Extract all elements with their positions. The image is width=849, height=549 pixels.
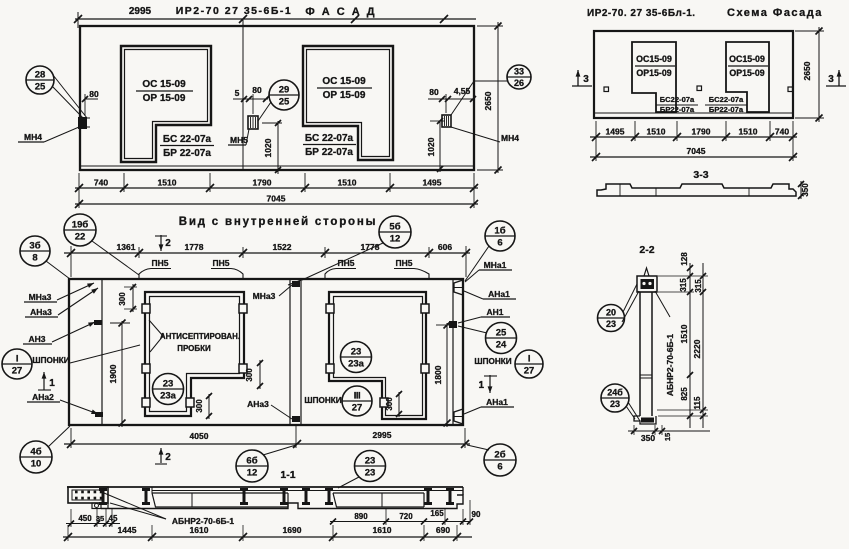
svg-text:ОР15-09: ОР15-09 [729,68,764,78]
svg-text:33: 33 [514,67,524,77]
svg-text:ОС15-09: ОС15-09 [636,54,672,64]
svg-text:6б: 6б [246,456,257,467]
svg-text:4050: 4050 [190,431,209,441]
svg-text:23: 23 [610,399,620,409]
svg-text:МНа1: МНа1 [484,260,507,270]
svg-text:АНа2: АНа2 [32,392,54,402]
svg-text:БР 22-07а: БР 22-07а [163,148,211,159]
svg-text:8: 8 [32,253,37,264]
svg-text:БР22-07а: БР22-07а [709,105,744,114]
svg-text:ПН5: ПН5 [152,258,169,268]
svg-text:6: 6 [497,462,502,473]
svg-text:БР 22-07а: БР 22-07а [305,147,353,158]
svg-text:БС 22-07а: БС 22-07а [163,134,212,145]
svg-text:2220: 2220 [692,339,702,358]
svg-text:128: 128 [680,252,689,266]
svg-text:3б: 3б [29,241,40,252]
svg-text:ШПОНКИ: ШПОНКИ [32,356,69,365]
svg-text:27: 27 [352,403,363,414]
svg-text:ПН5: ПН5 [396,258,413,268]
svg-text:1495: 1495 [606,127,625,137]
svg-text:23: 23 [365,456,376,467]
svg-text:2995: 2995 [373,430,392,440]
svg-text:80: 80 [89,89,99,99]
svg-text:450: 450 [78,514,92,523]
svg-text:3: 3 [828,74,834,85]
svg-text:29: 29 [279,85,290,96]
svg-text:5б: 5б [389,222,400,233]
svg-text:I: I [16,354,18,365]
svg-text:115: 115 [693,396,702,409]
svg-text:315: 315 [679,278,688,292]
svg-text:4,55: 4,55 [454,86,471,96]
svg-text:25: 25 [496,328,507,339]
svg-text:12: 12 [390,234,401,245]
svg-text:ОР 15-09: ОР 15-09 [323,90,366,101]
svg-text:1522: 1522 [273,242,292,252]
svg-text:20: 20 [606,308,616,318]
svg-text:Вид с внутренней стороны: Вид с внутренней стороны [179,216,378,228]
svg-text:23: 23 [365,468,376,479]
svg-text:АНа1: АНа1 [486,397,508,407]
svg-text:1790: 1790 [253,178,272,188]
svg-text:28: 28 [35,70,46,81]
svg-text:1: 1 [49,378,55,389]
svg-text:1361: 1361 [117,242,136,252]
svg-text:БС 22-07а: БС 22-07а [305,133,354,144]
svg-text:740: 740 [94,178,108,188]
svg-text:ИР2-70. 27 35-6Бл-1.: ИР2-70. 27 35-6Бл-1. [587,8,696,19]
svg-text:27: 27 [12,366,23,377]
svg-text:ПРОБКИ: ПРОБКИ [177,344,211,353]
svg-text:2б: 2б [494,450,505,461]
svg-text:7045: 7045 [267,194,286,204]
svg-text:23а: 23а [348,359,365,370]
svg-text:ШПОНКИ: ШПОНКИ [474,357,511,366]
svg-text:80: 80 [429,87,439,97]
svg-text:2-2: 2-2 [639,244,654,256]
svg-text:МНа3: МНа3 [253,291,276,301]
svg-text:Ф А С А Д: Ф А С А Д [305,6,376,18]
svg-text:1778: 1778 [185,242,204,252]
svg-text:АБНР2-70-6Б-1: АБНР2-70-6Б-1 [665,334,675,397]
svg-text:ОС15-09: ОС15-09 [729,54,765,64]
svg-text:1510: 1510 [338,178,357,188]
svg-text:1510: 1510 [739,127,758,137]
svg-text:1445: 1445 [118,525,137,535]
svg-text:300: 300 [118,292,127,306]
svg-text:Схема Фасада: Схема Фасада [727,7,823,19]
svg-text:3: 3 [583,74,589,85]
svg-text:5: 5 [235,88,240,98]
svg-text:24б: 24б [607,388,623,398]
svg-text:25: 25 [279,97,290,108]
svg-text:III: III [354,391,360,402]
svg-text:ОР15-09: ОР15-09 [636,68,671,78]
svg-text:6: 6 [497,238,502,249]
svg-text:2: 2 [165,238,171,249]
svg-text:720: 720 [399,512,413,521]
svg-text:2: 2 [165,452,171,463]
svg-text:7045: 7045 [687,146,706,156]
svg-text:АНа3: АНа3 [247,399,269,409]
svg-text:19б: 19б [72,220,89,231]
svg-text:890: 890 [354,512,368,521]
svg-text:10: 10 [31,459,42,470]
svg-text:1-1: 1-1 [280,469,295,481]
svg-text:4б: 4б [30,447,41,458]
svg-text:90: 90 [472,510,481,519]
svg-text:1495: 1495 [423,178,442,188]
svg-text:1778: 1778 [361,242,380,252]
svg-text:23: 23 [606,319,616,329]
svg-text:24: 24 [496,340,507,351]
svg-text:1800: 1800 [433,365,443,384]
svg-text:15: 15 [663,433,672,441]
svg-text:МН4: МН4 [501,133,519,143]
svg-text:1: 1 [478,380,484,391]
svg-text:ПН5: ПН5 [213,258,230,268]
svg-text:27: 27 [524,366,535,377]
svg-text:1610: 1610 [373,525,392,535]
svg-text:315: 315 [694,279,703,293]
svg-text:1510: 1510 [679,324,689,343]
svg-text:1790: 1790 [692,127,711,137]
svg-text:АНа3: АНа3 [30,307,52,317]
svg-text:300: 300 [245,368,254,382]
svg-text:АНТИСЕПТИРОВАН.: АНТИСЕПТИРОВАН. [160,332,240,341]
svg-text:2650: 2650 [483,91,493,110]
svg-text:165: 165 [430,509,444,518]
svg-text:ОС 15-09: ОС 15-09 [322,76,366,87]
svg-text:МН5: МН5 [230,135,248,145]
svg-text:825: 825 [680,387,689,401]
svg-text:1020: 1020 [263,138,273,157]
svg-text:1020: 1020 [426,137,436,156]
svg-text:2650: 2650 [802,61,812,80]
svg-text:23а: 23а [160,391,177,402]
svg-text:25: 25 [35,82,46,93]
svg-text:1900: 1900 [108,364,118,383]
svg-text:80: 80 [252,85,262,95]
svg-text:АНа1: АНа1 [488,289,510,299]
svg-text:БС22-07а: БС22-07а [709,95,744,104]
svg-text:300: 300 [195,399,204,413]
svg-text:ШПОНКИ: ШПОНКИ [304,396,341,405]
svg-text:1б: 1б [494,226,505,237]
svg-text:АН3: АН3 [28,334,45,344]
svg-text:2995: 2995 [129,6,152,17]
svg-text:АН1: АН1 [486,307,503,317]
svg-text:22: 22 [75,232,86,243]
svg-text:23: 23 [163,379,174,390]
svg-text:23: 23 [351,347,362,358]
svg-text:1610: 1610 [190,525,209,535]
svg-text:ИР2-70 27 35-6Б-1: ИР2-70 27 35-6Б-1 [176,5,292,17]
svg-text:МНа3: МНа3 [29,292,52,302]
svg-text:I: I [528,354,530,365]
svg-text:3-3: 3-3 [693,169,708,181]
svg-text:1510: 1510 [158,178,177,188]
svg-text:300: 300 [385,397,394,411]
svg-text:690: 690 [436,525,450,535]
svg-text:740: 740 [775,127,789,137]
svg-text:1690: 1690 [283,525,302,535]
svg-text:ОР 15-09: ОР 15-09 [143,93,186,104]
svg-text:350: 350 [641,433,655,443]
svg-text:ОС 15-09: ОС 15-09 [142,79,186,90]
svg-text:1510: 1510 [647,127,666,137]
svg-text:МН4: МН4 [24,132,42,142]
svg-text:БР22-07а: БР22-07а [660,105,695,114]
svg-text:26: 26 [514,78,524,88]
svg-text:БС22-07а: БС22-07а [660,95,695,104]
svg-text:606: 606 [438,242,452,252]
svg-text:12: 12 [247,468,258,479]
